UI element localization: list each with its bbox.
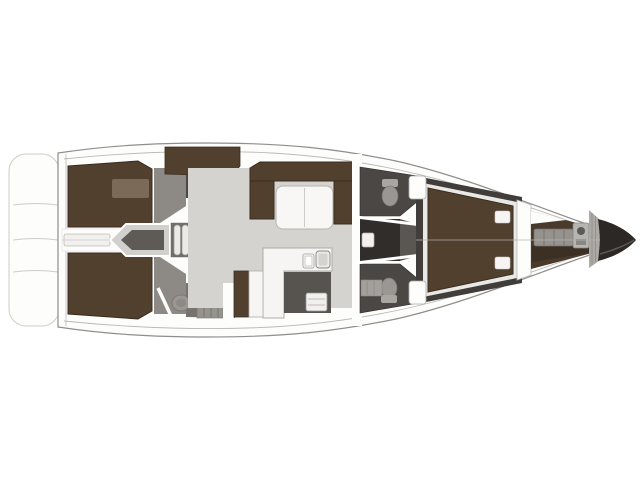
- berth-pillow: [495, 211, 510, 223]
- aft-berth-port-bedding: [112, 179, 149, 198]
- galley-cabinet-white: [249, 271, 263, 317]
- owner-cabin-locker: [409, 176, 426, 199]
- head-starboard-toilet-tank: [381, 295, 397, 303]
- head-port-toilet: [382, 186, 398, 206]
- yacht-layout-plan: sailing-yacht-interior-floor-plan: [0, 0, 640, 479]
- bow-cone: [598, 219, 636, 261]
- anchor-locker-hatch: [589, 210, 599, 268]
- aft-head-starboard-toilet-bowl: [176, 299, 186, 307]
- owner-cabin-locker: [409, 281, 426, 304]
- galley-stove-top: [319, 254, 328, 266]
- settee-back: [250, 162, 356, 181]
- corridor-door-panel: [362, 233, 374, 247]
- berth-pillow: [495, 257, 510, 269]
- bow-section: [531, 210, 636, 269]
- windlass-drum: [577, 227, 585, 235]
- step: [174, 225, 181, 255]
- galley-wall: [223, 283, 234, 320]
- aft-berth-starboard: [68, 253, 152, 319]
- floor-plan-svg: sailing-yacht-interior-floor-plan: [0, 0, 640, 479]
- forepeak-shelf: [534, 229, 573, 246]
- head-starboard-mat: [361, 280, 382, 296]
- galley-cabinet-wood: [234, 271, 249, 317]
- settee-left-arm: [250, 181, 274, 219]
- galley-fridge: [306, 293, 327, 311]
- step: [182, 225, 189, 255]
